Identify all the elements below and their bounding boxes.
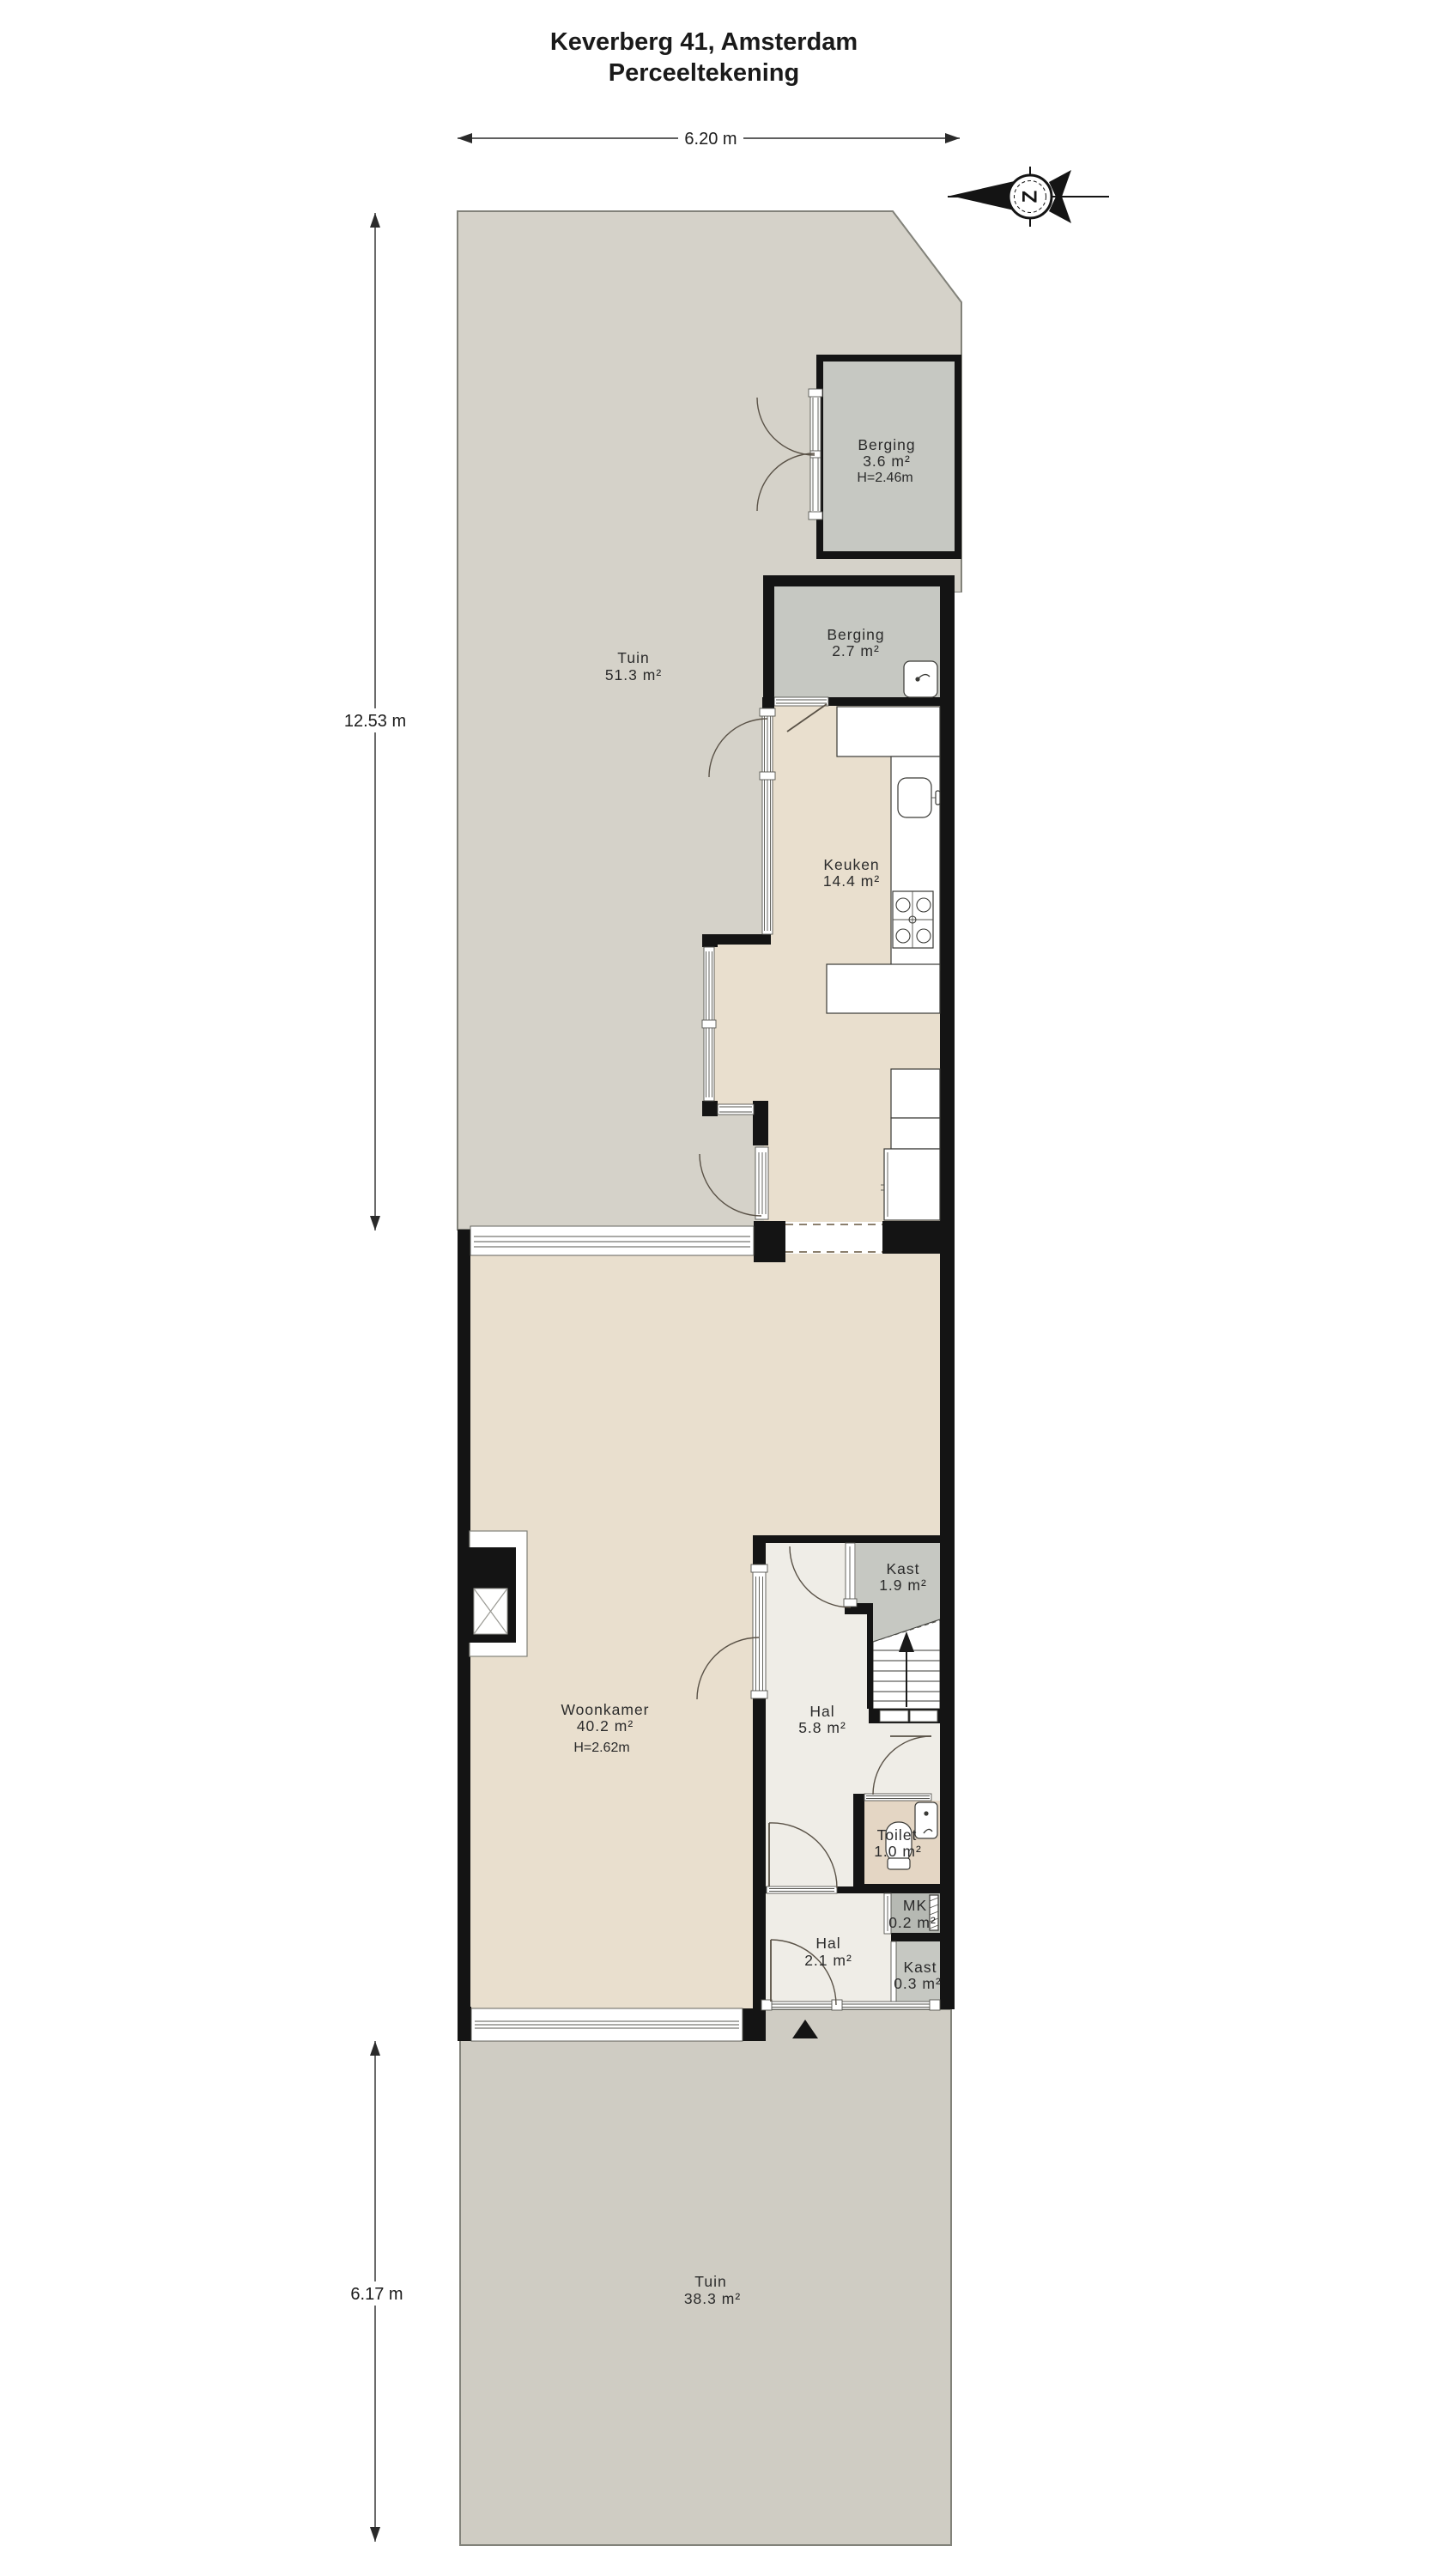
kitchen-island — [827, 964, 940, 1013]
berging-large-name: Berging — [858, 436, 915, 453]
woonkamer-area: 40.2 m² — [577, 1717, 634, 1735]
mk-area: 0.2 m² — [888, 1914, 937, 1931]
woonkamer-ceiling: H=2.62m — [573, 1741, 629, 1755]
mk-name: MK — [903, 1897, 927, 1914]
dimension-left-upper: 12.53 m — [338, 213, 412, 1230]
kast-stairs-name: Kast — [886, 1560, 919, 1577]
dimension-top: 6.20 m — [458, 126, 960, 149]
tuin-bottom-area: 38.3 m² — [684, 2290, 741, 2307]
woonkamer-name: Woonkamer — [561, 1701, 649, 1718]
berging-large-area: 3.6 m² — [863, 453, 911, 470]
compass-icon: Z — [948, 167, 1109, 227]
tuin-bottom-name: Tuin — [694, 2273, 726, 2290]
compass-letter: Z — [1019, 191, 1042, 204]
berging-small-name: Berging — [827, 626, 884, 643]
keuken-name: Keuken — [823, 856, 879, 873]
hal-main-name: Hal — [809, 1703, 834, 1720]
kitchen-counter-top — [837, 707, 940, 756]
keuken-bay-floor — [709, 943, 769, 1109]
kast-entry-area: 0.3 m² — [894, 1975, 942, 1992]
kitchen-counter-lower2 — [891, 1118, 940, 1149]
dimension-left-lower: 6.17 m — [343, 2041, 410, 2542]
kast-stairs-area: 1.9 m² — [879, 1577, 927, 1594]
toilet-name: Toilet — [877, 1826, 918, 1844]
dimension-top-label: 6.20 m — [684, 130, 737, 149]
hal-entry-name: Hal — [815, 1935, 840, 1952]
kast-entry-name: Kast — [903, 1959, 937, 1976]
floorplan-page: 6.20 m 12.53 m 6.17 m Z Keverberg 41, Am… — [0, 0, 1449, 2576]
berging-small-area: 2.7 m² — [832, 642, 880, 659]
page-title-line2: Perceeltekening — [609, 59, 799, 87]
berging-small-washbasin — [904, 661, 937, 697]
tuin-top-area: 51.3 m² — [605, 666, 662, 683]
tuin-top-name: Tuin — [617, 649, 649, 666]
floor-plan: 6.20 m 12.53 m 6.17 m Z Keverberg 41, Am… — [0, 0, 1449, 2576]
open-passage — [785, 1222, 882, 1254]
kitchen-appliance — [881, 1149, 940, 1220]
berging-large-ceiling: H=2.46m — [857, 471, 912, 485]
keuken-area: 14.4 m² — [823, 872, 880, 890]
toilet-area: 1.0 m² — [874, 1843, 922, 1860]
dimension-left-upper-label: 12.53 m — [344, 712, 406, 731]
page-title-line1: Keverberg 41, Amsterdam — [550, 28, 858, 56]
hal-main-area: 5.8 m² — [798, 1719, 846, 1736]
dimension-left-lower-label: 6.17 m — [350, 2285, 403, 2304]
shaft — [468, 1531, 527, 1656]
toilet-washbasin — [915, 1802, 937, 1838]
kitchen-stove — [893, 891, 933, 948]
kitchen-counter-lower — [891, 1069, 940, 1118]
outside-mask-right — [955, 592, 1015, 1232]
hal-entry-area: 2.1 m² — [804, 1952, 852, 1969]
